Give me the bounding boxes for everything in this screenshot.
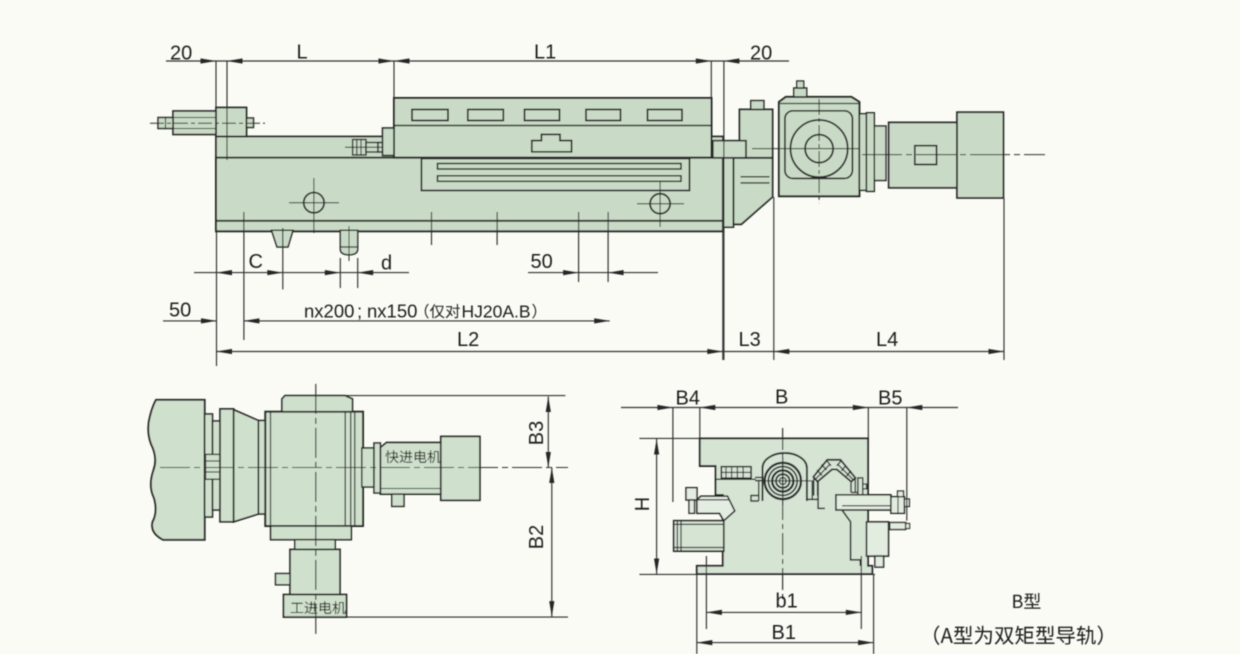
svg-text:nx200: nx200 <box>304 301 354 322</box>
svg-text:L: L <box>297 42 308 64</box>
svg-text:C: C <box>249 251 263 273</box>
svg-text:B: B <box>775 387 788 409</box>
svg-text:L4: L4 <box>876 329 898 351</box>
svg-text:L2: L2 <box>457 329 479 351</box>
svg-text:B5: B5 <box>878 388 902 410</box>
svg-text:L1: L1 <box>534 42 556 64</box>
svg-text:50: 50 <box>169 300 191 322</box>
svg-text:B1: B1 <box>772 622 796 644</box>
svg-text:H: H <box>632 497 654 511</box>
svg-text:50: 50 <box>531 251 553 273</box>
svg-text:20: 20 <box>750 43 772 65</box>
svg-text:L3: L3 <box>739 329 761 351</box>
svg-text:b1: b1 <box>776 591 798 613</box>
svg-text:;: ; <box>357 301 362 322</box>
svg-text:nx150: nx150 <box>367 301 417 322</box>
svg-text:HJ20A.B: HJ20A.B <box>462 302 531 322</box>
svg-text:d: d <box>381 253 392 275</box>
svg-text:B4: B4 <box>676 388 700 410</box>
svg-text:B2: B2 <box>526 525 548 549</box>
svg-text:20: 20 <box>170 43 192 65</box>
svg-text:B3: B3 <box>526 421 548 445</box>
